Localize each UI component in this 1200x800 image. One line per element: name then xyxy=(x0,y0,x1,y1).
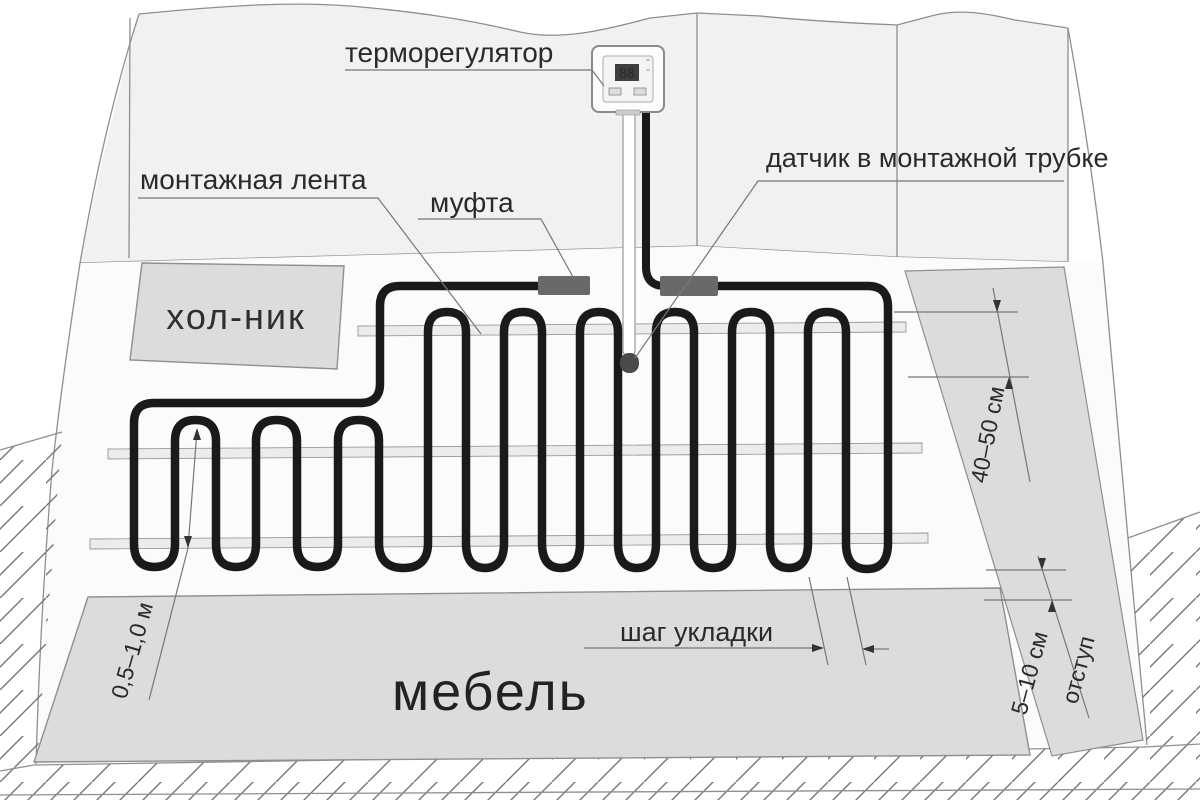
thermostat-button-right xyxy=(634,88,646,95)
coupling-left xyxy=(538,276,590,295)
coupling-label: муфта xyxy=(430,187,514,218)
thermostat-button-left xyxy=(609,88,621,95)
diagram-canvas: 88 40–50 см 5–10 см отступ 0,5–1,0 м xyxy=(0,0,1200,800)
furniture-label: мебель xyxy=(392,662,589,722)
thermostat-display-value: 88 xyxy=(619,67,635,82)
fridge-label: хол-ник xyxy=(166,296,306,337)
mounting-tape-label: монтажная лента xyxy=(140,164,367,195)
thermostat-label: терморегулятор xyxy=(345,37,553,68)
thermostat-device: 88 xyxy=(592,46,664,115)
sensor-tube xyxy=(623,108,635,355)
laying-step-label: шаг укладки xyxy=(620,617,773,647)
heating-floor-diagram: 88 40–50 см 5–10 см отступ 0,5–1,0 м xyxy=(0,0,1200,800)
sensor-label: датчик в монтажной трубке xyxy=(766,143,1108,173)
coupling-right xyxy=(660,276,718,296)
wall-back xyxy=(80,4,1068,263)
